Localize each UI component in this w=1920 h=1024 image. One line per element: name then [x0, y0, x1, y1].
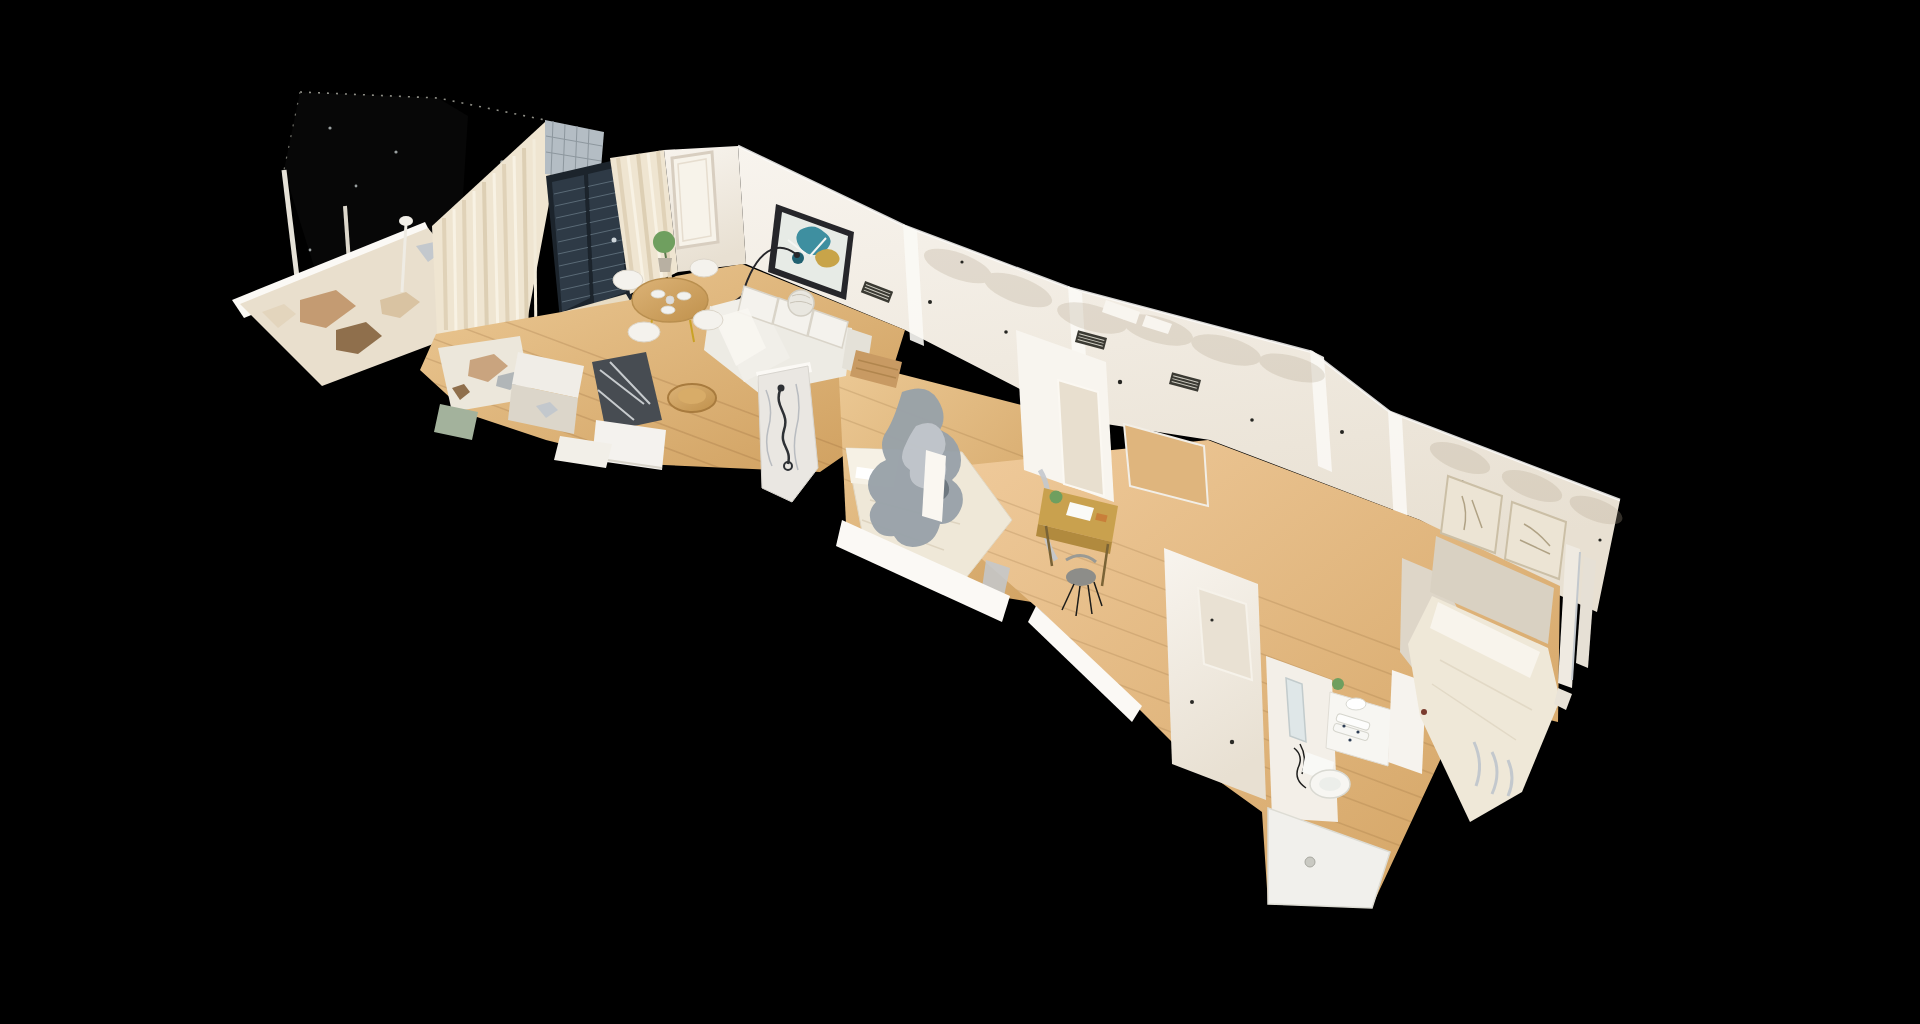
dining-chair [690, 259, 718, 277]
mirror [1286, 678, 1306, 742]
plant-pot [658, 258, 672, 272]
coffee-table-top [678, 388, 706, 404]
shower-drain [1305, 857, 1315, 867]
house-plant [653, 231, 675, 253]
desk-plant [1050, 491, 1063, 504]
door-jamb [922, 450, 946, 522]
bathroom-plant [1332, 678, 1344, 690]
floor-lamp-shade [399, 216, 413, 226]
dollhouse-3d-viewport[interactable] [0, 0, 1920, 1024]
dining-chair [628, 322, 660, 342]
red-scan-dot [1421, 709, 1427, 715]
dollhouse-render[interactable] [0, 0, 1920, 1024]
round-bolster-pillow [788, 290, 814, 316]
desk-chair-seat [1066, 568, 1096, 586]
sink-basin [1346, 698, 1366, 710]
dining-chair [693, 310, 723, 330]
door-handle [612, 238, 617, 243]
doorway-1 [1058, 380, 1104, 496]
toilet-seat [1319, 777, 1341, 791]
